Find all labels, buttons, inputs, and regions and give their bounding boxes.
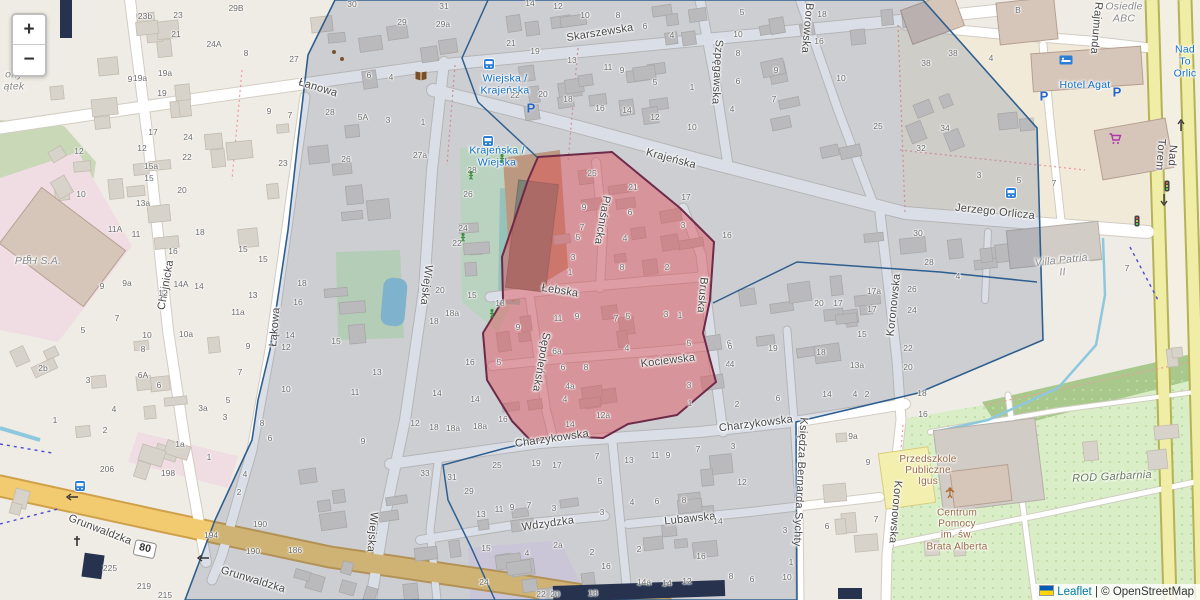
dark-feature [60,0,72,38]
leaflet-map[interactable]: SkarszewskaŁanowaKrajeńskaJerzego Orlicz… [0,0,1200,600]
landmark-building [1031,46,1143,92]
map-canvas [0,0,1200,600]
landmark-building [878,447,935,509]
copyright-symbol: © [1101,586,1113,598]
zoom-out-button[interactable]: − [13,45,45,75]
attribution-bar: Leaflet | © OpenStreetMap [1033,584,1200,600]
openstreetmap-link[interactable]: OpenStreetMap [1113,586,1194,598]
landmark-building [950,465,1012,508]
dark-feature [838,588,862,599]
zoom-control: + − [11,13,47,77]
ukraine-flag-icon [1039,585,1054,596]
dark-feature [81,553,104,580]
landmark-building [996,0,1058,45]
attribution-separator: | [1092,586,1101,598]
leaflet-link[interactable]: Leaflet [1057,586,1092,598]
zoom-in-button[interactable]: + [13,15,45,45]
